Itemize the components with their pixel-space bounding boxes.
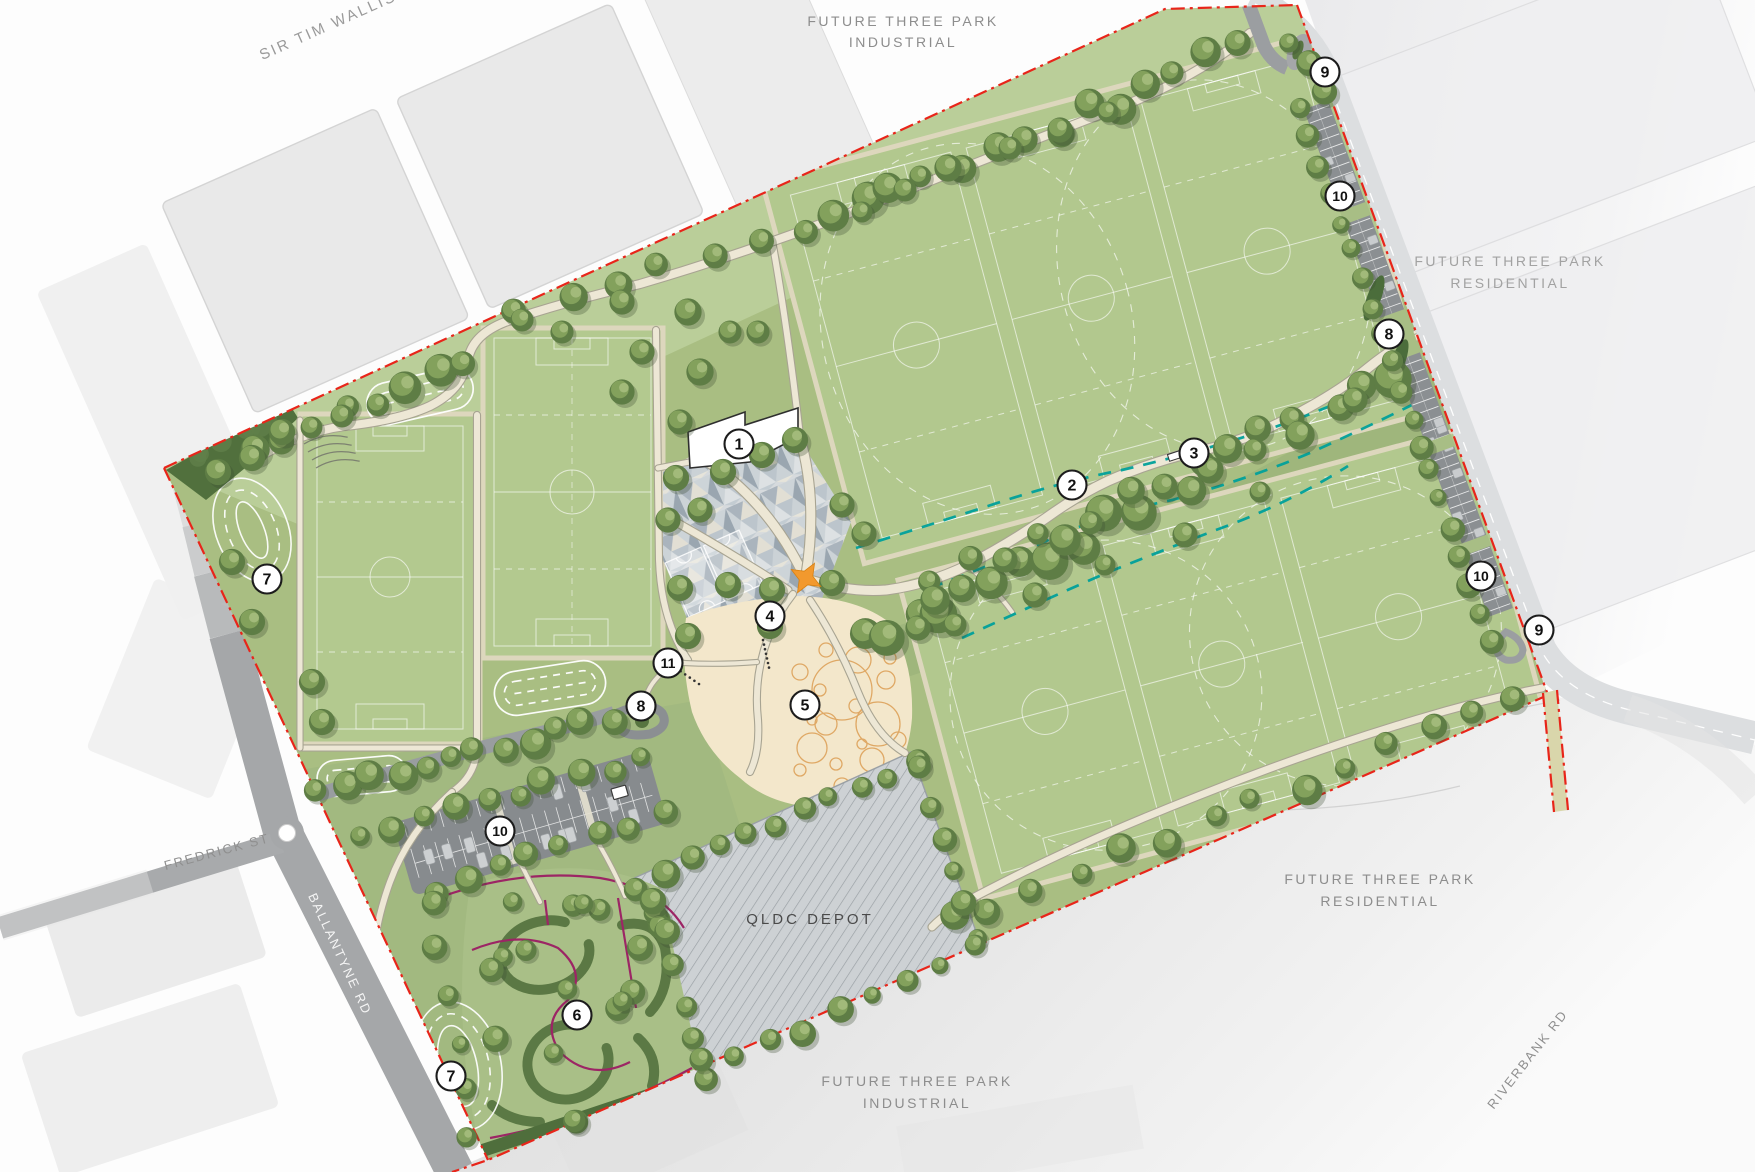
svg-text:QLDC DEPOT: QLDC DEPOT (746, 911, 874, 928)
svg-text:INDUSTRIAL: INDUSTRIAL (849, 34, 957, 50)
svg-text:RESIDENTIAL: RESIDENTIAL (1320, 893, 1439, 909)
svg-text:10: 10 (1332, 188, 1348, 204)
svg-text:10: 10 (1473, 568, 1489, 584)
svg-text:5: 5 (801, 698, 810, 715)
svg-text:FUTURE THREE PARK: FUTURE THREE PARK (807, 13, 998, 29)
svg-text:8: 8 (637, 699, 646, 716)
svg-text:10: 10 (492, 823, 508, 839)
svg-text:9: 9 (1535, 623, 1544, 640)
svg-text:6: 6 (573, 1008, 582, 1025)
svg-text:1: 1 (735, 437, 744, 454)
svg-text:RESIDENTIAL: RESIDENTIAL (1450, 275, 1569, 291)
svg-text:7: 7 (447, 1069, 456, 1086)
svg-text:8: 8 (1385, 327, 1394, 344)
svg-text:FUTURE THREE PARK: FUTURE THREE PARK (1414, 253, 1605, 269)
svg-text:9: 9 (1321, 65, 1330, 82)
svg-text:INDUSTRIAL: INDUSTRIAL (863, 1095, 971, 1111)
svg-text:11: 11 (661, 655, 676, 671)
svg-text:FUTURE THREE PARK: FUTURE THREE PARK (821, 1073, 1012, 1089)
svg-text:2: 2 (1068, 478, 1077, 495)
svg-text:7: 7 (263, 572, 272, 589)
svg-text:4: 4 (766, 609, 775, 626)
svg-text:FUTURE THREE PARK: FUTURE THREE PARK (1284, 871, 1475, 887)
svg-text:3: 3 (1190, 446, 1199, 463)
